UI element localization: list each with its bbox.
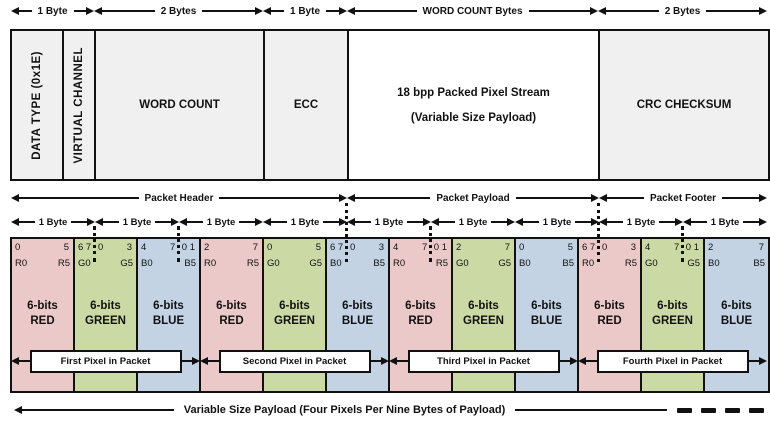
byte-boundary-dotted-line xyxy=(681,226,684,262)
channel-start: R0 xyxy=(582,258,594,269)
pixel1-label-box: First Pixel in Packet xyxy=(30,350,182,373)
arrowhead-left-icon xyxy=(599,194,607,202)
arrowhead-left-icon xyxy=(515,218,523,226)
arrowhead-left-icon xyxy=(263,218,271,226)
pixel4-span-arrow: Fourth Pixel in Packet xyxy=(578,349,767,373)
bit-end: 3 xyxy=(631,242,636,253)
variable-payload-label: Variable Size Payload (Four Pixels Per N… xyxy=(184,404,506,416)
packet-format-diagram: 1 Byte 2 Bytes 1 Byte WORD COUNT Bytes 2… xyxy=(0,0,770,425)
arrowhead-right-icon xyxy=(192,357,200,365)
bit-start: 0 xyxy=(519,242,524,253)
arrowhead-left-icon xyxy=(683,218,691,226)
payload-byte-arrow-4: 1 Byte xyxy=(263,215,347,229)
cell-title: 6-bitsRED xyxy=(201,299,262,329)
arrowhead-right-icon xyxy=(339,7,347,15)
field-word-count: WORD COUNT xyxy=(96,31,265,179)
byte-width-label: 2 Bytes xyxy=(665,6,701,17)
arrowhead-left-icon xyxy=(11,357,19,365)
arrowhead-right-icon xyxy=(423,218,431,226)
bit-start: 0 xyxy=(267,242,272,253)
bit-start: 6 7 xyxy=(78,242,91,253)
payload-byte-arrow-5: 1 Byte xyxy=(347,215,431,229)
byte-width-label: 1 Byte xyxy=(38,6,68,17)
arrowhead-right-icon xyxy=(86,7,94,15)
arrowhead-left-icon xyxy=(11,194,19,202)
bit-start: 2 xyxy=(204,242,209,253)
channel-start: B0 xyxy=(519,258,531,269)
bit-end: 5 xyxy=(316,242,321,253)
field-ecc: ECC xyxy=(265,31,349,179)
bit-start: 4 xyxy=(141,242,146,253)
channel-start: G0 xyxy=(78,258,91,269)
arrowhead-left-icon xyxy=(578,357,586,365)
bit-start: 0 xyxy=(15,242,20,253)
bit-start: 4 xyxy=(645,242,650,253)
arrowhead-right-icon xyxy=(759,218,767,226)
cell-title: 6-bitsBLUE xyxy=(516,299,577,329)
channel-end: R5 xyxy=(58,258,70,269)
payload-byte-arrow-2: 1 Byte xyxy=(95,215,179,229)
field-virtual-channel: VIRTUAL CHANNEL xyxy=(64,31,96,179)
channel-end: B5 xyxy=(184,258,196,269)
channel-start: B0 xyxy=(141,258,153,269)
channel-end: G5 xyxy=(498,258,511,269)
section-label: Packet Header xyxy=(145,193,214,204)
arrowhead-left-icon xyxy=(598,7,606,15)
arrowhead-right-icon xyxy=(759,7,767,15)
byte-width-arrow-ecc: 1 Byte xyxy=(263,4,347,18)
bit-end: 5 xyxy=(568,242,573,253)
section-arrow-packet-payload: Packet Payload xyxy=(347,191,599,205)
cell-title: 6-bitsRED xyxy=(12,299,73,329)
arrowhead-right-icon xyxy=(255,218,263,226)
arrowhead-right-icon xyxy=(87,218,95,226)
channel-end: G5 xyxy=(120,258,133,269)
cell-title: 6-bitsBLUE xyxy=(138,299,199,329)
arrowhead-left-icon xyxy=(11,7,19,15)
arrowhead-right-icon xyxy=(759,357,767,365)
bit-mid: 7 xyxy=(674,242,679,253)
section-arrow-packet-header: Packet Header xyxy=(11,191,347,205)
bit-end: 0 1 xyxy=(182,242,195,253)
arrowhead-left-icon xyxy=(389,357,397,365)
cell-title: 6-bitsGREEN xyxy=(264,299,325,329)
arrowhead-right-icon xyxy=(591,194,599,202)
payload-byte-arrow-1: 1 Byte xyxy=(11,215,95,229)
channel-end: R5 xyxy=(625,258,637,269)
arrowhead-left-icon xyxy=(347,218,355,226)
byte-width-label: 1 Byte xyxy=(290,6,320,17)
arrowhead-left-icon xyxy=(431,218,439,226)
pixel2-label-box: Second Pixel in Packet xyxy=(219,350,371,373)
pixel3-label-box: Third Pixel in Packet xyxy=(408,350,560,373)
cell-title: 6-bitsGREEN xyxy=(642,299,703,329)
byte-boundary-dotted-line xyxy=(597,203,600,262)
bit-start: 2 xyxy=(708,242,713,253)
section-arrow-packet-footer: Packet Footer xyxy=(599,191,767,205)
arrowhead-left-icon xyxy=(200,357,208,365)
arrowhead-right-icon xyxy=(507,218,515,226)
bit-end: 5 xyxy=(64,242,69,253)
bit-mid: 0 xyxy=(602,242,607,253)
cell-title: 6-bitsGREEN xyxy=(75,299,136,329)
channel-start: G0 xyxy=(456,258,469,269)
payload-byte-arrow-8: 1 Byte xyxy=(599,215,683,229)
pixel-stream-line2: (Variable Size Payload) xyxy=(411,112,536,124)
cell-title: 6-bitsBLUE xyxy=(327,299,388,329)
cell-title: 6-bitsGREEN xyxy=(453,299,514,329)
variable-payload-arrow: Variable Size Payload (Four Pixels Per N… xyxy=(14,403,764,417)
bit-end: 3 xyxy=(127,242,132,253)
arrowhead-right-icon xyxy=(759,194,767,202)
bit-end: 0 1 xyxy=(686,242,699,253)
byte-width-arrow-payload: WORD COUNT Bytes xyxy=(347,4,598,18)
field-data-type: DATA TYPE (0x1E) xyxy=(12,31,64,179)
bit-mid: 0 xyxy=(98,242,103,253)
channel-end: G5 xyxy=(687,258,700,269)
arrowhead-left-icon xyxy=(94,7,102,15)
bit-end: 7 xyxy=(505,242,510,253)
bit-end: 7 xyxy=(759,242,764,253)
byte-boundary-dotted-line xyxy=(93,226,96,262)
payload-byte-arrow-7: 1 Byte xyxy=(515,215,599,229)
pixel-stream-line1: 18 bpp Packed Pixel Stream xyxy=(397,87,550,99)
channel-start: G0 xyxy=(645,258,658,269)
channel-end: B5 xyxy=(753,258,765,269)
channel-start: R0 xyxy=(15,258,27,269)
continuation-dashes-icon xyxy=(677,408,764,413)
arrowhead-left-icon xyxy=(347,194,355,202)
channel-end: R5 xyxy=(436,258,448,269)
arrowhead-right-icon xyxy=(675,218,683,226)
packet-structure-table: DATA TYPE (0x1E) VIRTUAL CHANNEL WORD CO… xyxy=(10,29,770,181)
arrowhead-right-icon xyxy=(171,218,179,226)
arrowhead-left-icon xyxy=(347,7,355,15)
arrowhead-left-icon xyxy=(263,7,271,15)
arrowhead-left-icon xyxy=(599,218,607,226)
channel-start: B0 xyxy=(330,258,342,269)
channel-start: R0 xyxy=(204,258,216,269)
arrowhead-right-icon xyxy=(255,7,263,15)
byte-width-label: 2 Bytes xyxy=(161,6,197,17)
arrowhead-right-icon xyxy=(381,357,389,365)
bit-start: 6 7 xyxy=(582,242,595,253)
channel-end: R5 xyxy=(247,258,259,269)
bit-end: 3 xyxy=(379,242,384,253)
pixel2-span-arrow: Second Pixel in Packet xyxy=(200,349,389,373)
cell-title: 6-bitsBLUE xyxy=(705,299,768,329)
payload-byte-arrow-6: 1 Byte xyxy=(431,215,515,229)
channel-end: B5 xyxy=(373,258,385,269)
cell-title: 6-bitsRED xyxy=(390,299,451,329)
byte-boundary-dotted-line xyxy=(345,203,348,262)
channel-start: B0 xyxy=(708,258,720,269)
field-pixel-stream: 18 bpp Packed Pixel Stream (Variable Siz… xyxy=(349,31,600,179)
arrowhead-left-icon xyxy=(179,218,187,226)
arrowhead-right-icon xyxy=(590,7,598,15)
arrowhead-right-icon xyxy=(339,194,347,202)
pixel1-span-arrow: First Pixel in Packet xyxy=(11,349,200,373)
bit-start: 2 xyxy=(456,242,461,253)
section-label: Packet Footer xyxy=(650,193,716,204)
bit-mid: 7 xyxy=(170,242,175,253)
byte-boundary-dotted-line xyxy=(429,226,432,262)
channel-end: G5 xyxy=(309,258,322,269)
byte-width-arrow-wordcount: 2 Bytes xyxy=(94,4,263,18)
arrowhead-left-icon xyxy=(14,406,22,414)
bit-start: 4 xyxy=(393,242,398,253)
arrowhead-left-icon xyxy=(11,218,19,226)
arrowhead-right-icon xyxy=(570,357,578,365)
channel-start: G0 xyxy=(267,258,280,269)
arrowhead-left-icon xyxy=(95,218,103,226)
bit-mid: 7 xyxy=(422,242,427,253)
payload-byte-arrow-3: 1 Byte xyxy=(179,215,263,229)
channel-end: B5 xyxy=(562,258,574,269)
bit-end: 0 1 xyxy=(434,242,447,253)
cell-title: 6-bitsRED xyxy=(579,299,640,329)
payload-byte-arrow-9: 1 Byte xyxy=(683,215,767,229)
pixel4-label-box: Fourth Pixel in Packet xyxy=(597,350,749,373)
bit-start: 6 7 xyxy=(330,242,343,253)
byte-boundary-dotted-line xyxy=(177,226,180,262)
byte-width-arrow-crc: 2 Bytes xyxy=(598,4,767,18)
byte-width-label: WORD COUNT Bytes xyxy=(423,6,523,17)
bit-end: 7 xyxy=(253,242,258,253)
byte-width-arrow-header1: 1 Byte xyxy=(11,4,94,18)
field-crc-checksum: CRC CHECKSUM xyxy=(600,31,768,179)
section-label: Packet Payload xyxy=(436,193,509,204)
bit-mid: 0 xyxy=(350,242,355,253)
channel-start: R0 xyxy=(393,258,405,269)
pixel3-span-arrow: Third Pixel in Packet xyxy=(389,349,578,373)
